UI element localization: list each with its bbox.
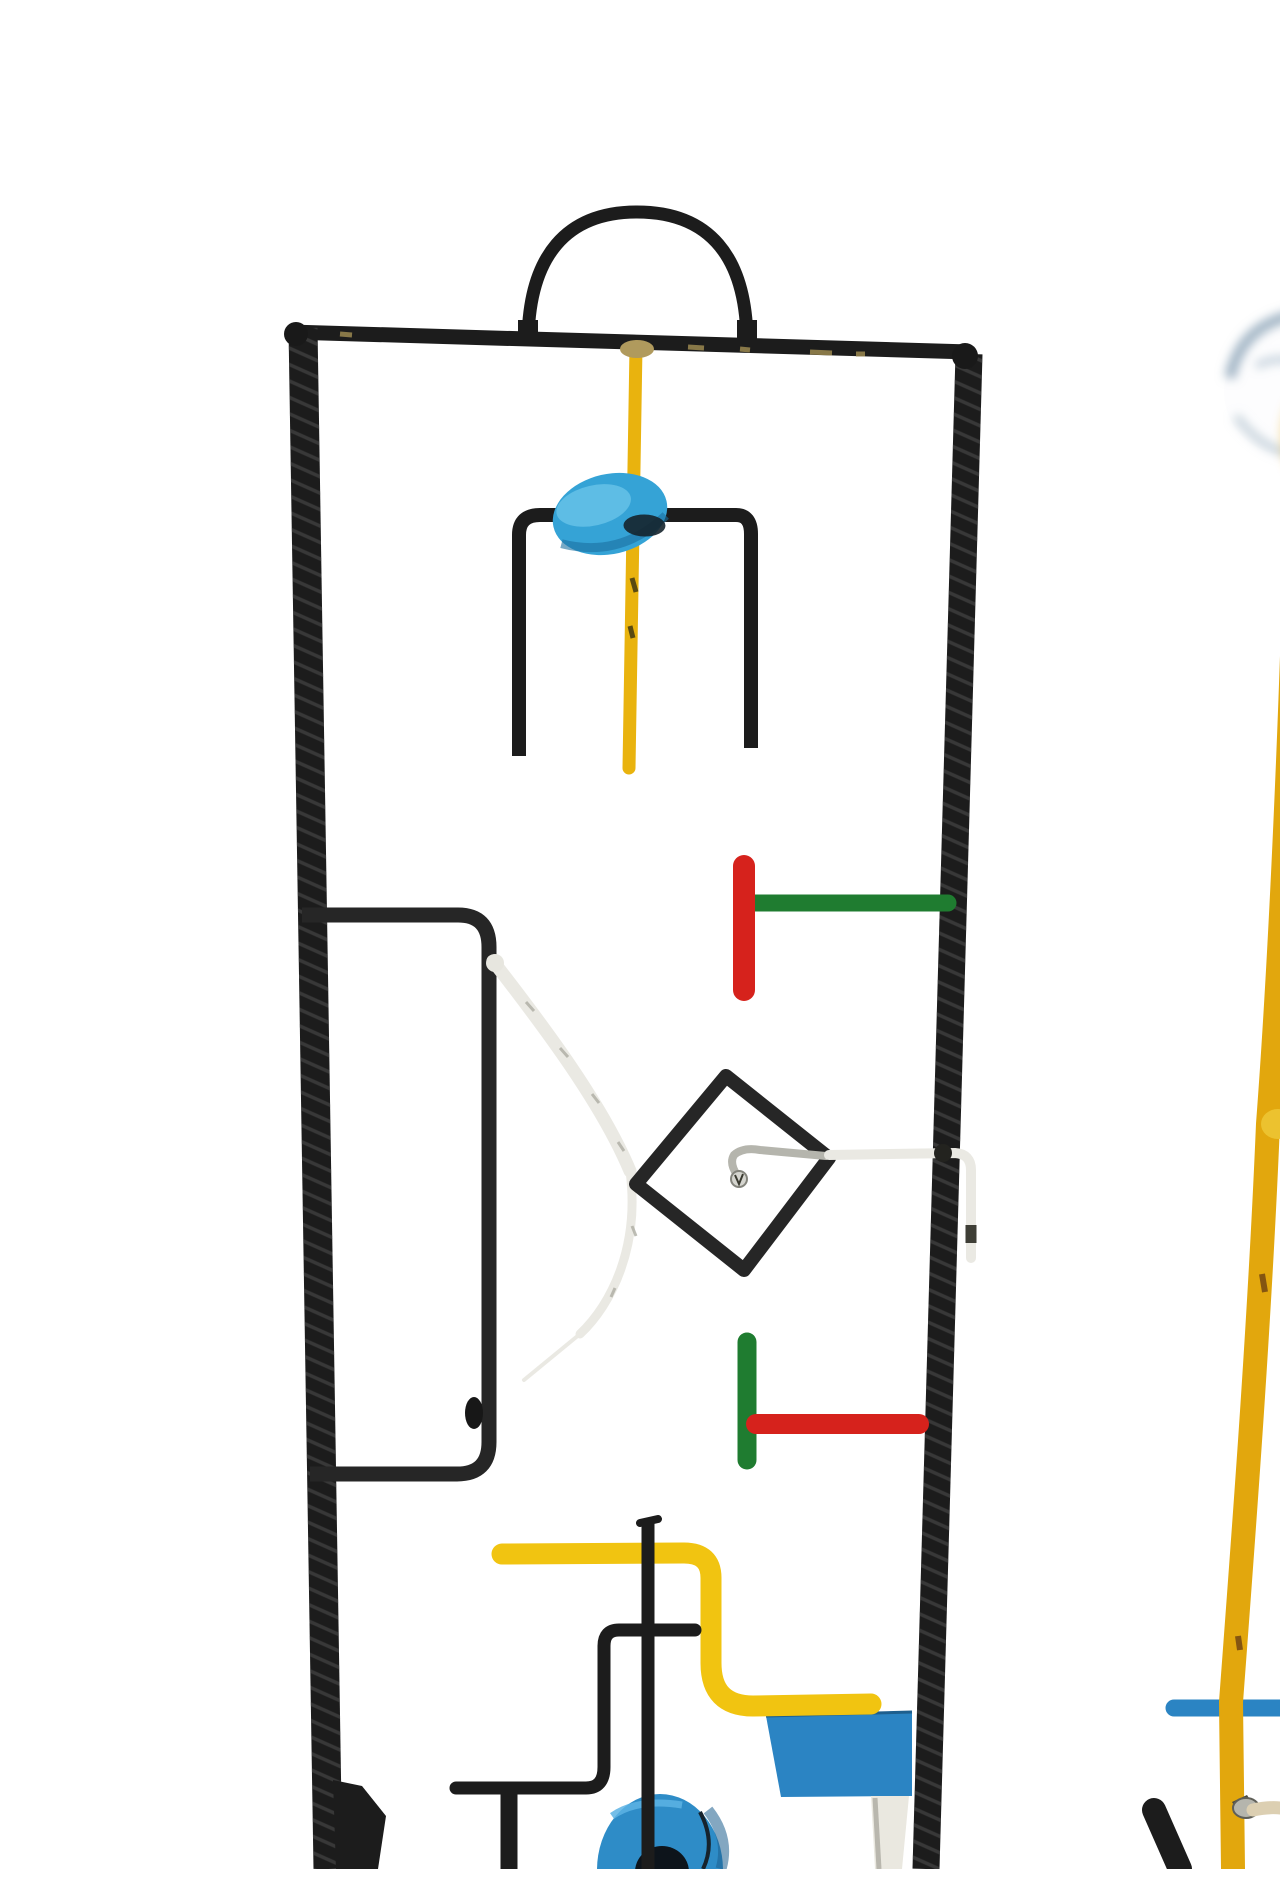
- blue-panel: [766, 1712, 912, 1797]
- spindle-rod: [629, 347, 636, 768]
- studio-background: [40, 16, 1280, 1869]
- white-bow-attach-weld: [486, 954, 504, 972]
- spindle-top-weld: [620, 340, 654, 358]
- sculpture-photo: [40, 16, 1280, 1869]
- frame-corner-weld-right: [952, 343, 978, 369]
- wire-frame-crossing-weld: [934, 1144, 952, 1162]
- frame-corner-weld-left: [284, 322, 308, 346]
- inner-loop-weld-bump: [465, 1397, 483, 1429]
